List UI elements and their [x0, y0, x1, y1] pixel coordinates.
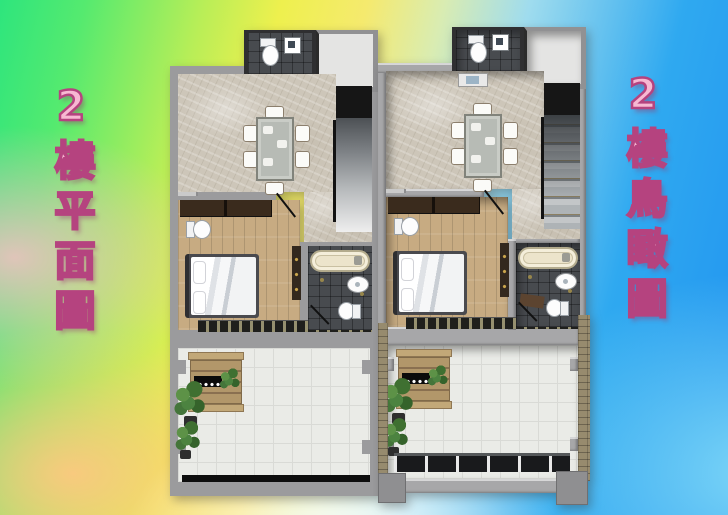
outer-wall-bottom: [378, 479, 586, 493]
dining-chair: [503, 148, 518, 165]
place-setting: [277, 140, 287, 148]
pillow: [193, 291, 206, 314]
terrace-dividing-wall: [386, 327, 580, 345]
bench-plant-icon: [218, 368, 242, 392]
toilet-icon: [262, 45, 279, 66]
planter-bench-rail: [396, 349, 452, 357]
bathtub-fixture: [354, 256, 362, 265]
brick-wall-face: [378, 323, 388, 477]
planter-bench-rail: [188, 352, 244, 360]
dining-chair: [295, 151, 310, 168]
toilet-tank: [560, 301, 569, 316]
spotlight-dot: [320, 278, 324, 282]
place-setting: [471, 123, 481, 131]
brick-wall-face: [578, 315, 590, 481]
wc-floor: [456, 30, 520, 71]
terrace-edge-strip: [182, 475, 370, 482]
stairwell: [336, 118, 372, 232]
floor-plan-flat: [170, 30, 378, 496]
dining-chair: [295, 125, 310, 142]
wall-footing: [556, 471, 588, 505]
terrace-dividing-wall: [178, 330, 372, 348]
wall-tab: [178, 360, 186, 374]
dark-wall-block: [336, 86, 372, 118]
pillow: [401, 258, 414, 281]
dining-table: [464, 114, 502, 178]
left-title-vertical: 2樓平面圖: [50, 82, 91, 350]
wall-tab: [570, 437, 578, 451]
washbasin-drain: [355, 282, 360, 287]
potted-plant-icon: [174, 420, 202, 456]
wall-tab: [570, 357, 578, 371]
bench-plant-icon: [426, 365, 450, 389]
stairwell-steps: [544, 115, 580, 229]
toilet-icon: [193, 220, 211, 239]
wardrobe: [388, 197, 480, 214]
wall-tab: [362, 360, 370, 374]
wall-footing: [378, 473, 406, 503]
place-setting: [471, 155, 481, 163]
balcony-railing: [394, 453, 570, 472]
spotlight-dot: [360, 292, 364, 296]
vanity-sink: [466, 76, 479, 84]
wardrobe: [180, 200, 272, 217]
potted-plant-icon: [172, 380, 208, 422]
cabinet-items: [294, 252, 299, 296]
dining-chair: [265, 182, 284, 195]
toilet-tank: [352, 304, 361, 319]
floor-plan-birdseye: [378, 27, 590, 505]
stair-railing: [333, 120, 336, 222]
right-title-vertical: 2樓鳥瞰圖: [622, 70, 663, 338]
washbasin-drain: [563, 279, 568, 284]
pillow: [193, 261, 206, 284]
stair-railing: [541, 117, 544, 219]
dining-table: [256, 117, 294, 181]
place-setting: [263, 158, 273, 166]
outer-wall-bottom: [170, 482, 378, 496]
dining-chair: [503, 122, 518, 139]
wc-floor: [248, 33, 312, 74]
dark-wall-block: [544, 83, 580, 115]
place-setting: [485, 137, 495, 145]
toilet-icon: [470, 42, 487, 63]
dining-chair: [473, 179, 492, 192]
pillow: [401, 288, 414, 311]
floor-plan-poster: 2樓平面圖 2樓鳥瞰圖: [0, 0, 728, 515]
wall-tab: [362, 440, 370, 454]
toilet-icon: [401, 217, 419, 236]
spotlight-dot: [568, 289, 572, 293]
spotlight-dot: [528, 275, 532, 279]
bathtub-fixture: [562, 253, 570, 262]
wc-sink-basin: [496, 38, 503, 45]
cabinet-items: [502, 249, 507, 293]
place-setting: [263, 126, 273, 134]
wc-sink-basin: [288, 41, 295, 48]
